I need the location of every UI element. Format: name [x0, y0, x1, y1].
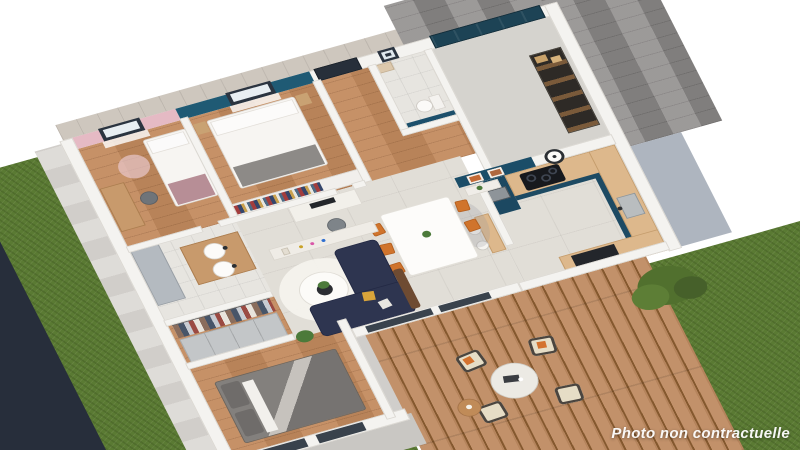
cushion-mustard — [362, 291, 376, 301]
floor-plan-render: Photo non contractuelle — [0, 0, 800, 450]
outdoor-pillow-orange — [536, 341, 547, 349]
watermark-text: Photo non contractuelle — [611, 425, 790, 442]
